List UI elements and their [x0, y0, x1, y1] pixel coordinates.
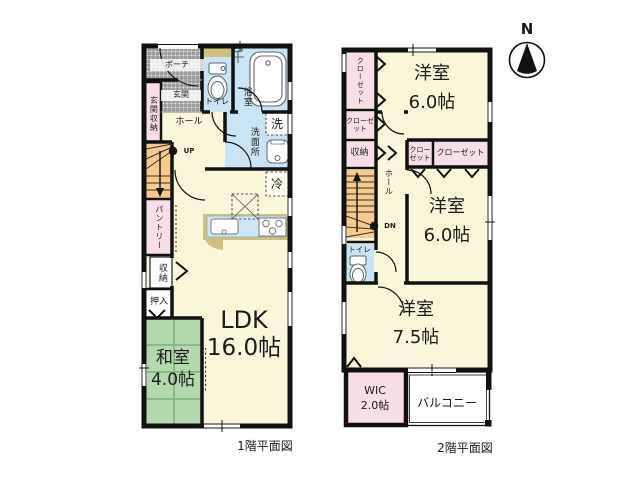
room-wic: [344, 370, 406, 426]
room-label-bedroom-mid: 洋室: [408, 196, 486, 218]
room-label-bedroom-mid-size: 6.0帖: [408, 225, 486, 247]
room-label-entrance: 玄関: [161, 90, 201, 101]
dn-dot: [370, 222, 378, 230]
room-label-porch: ポーチ: [150, 59, 204, 71]
label-closet-left-small: クローゼット: [345, 113, 375, 138]
room-label-bedroom-bottom-size: 7.5帖: [377, 327, 455, 349]
up-dot: [169, 147, 177, 155]
room-label-hall-2f: ホール: [381, 164, 395, 200]
room-label-bathroom: 浴室: [239, 78, 253, 116]
sink-icon-washroom: [267, 140, 288, 163]
label-closet-wide: クローゼット: [433, 147, 488, 160]
floorplan-page: N ポーチ 玄関 玄関収納 トイレ 浴室 洗面所 洗 ホール UP 冷 パントリ…: [0, 0, 636, 480]
north-arrow-icon: [510, 43, 545, 78]
toilet-icon-2f: [350, 256, 366, 284]
caption-floor2: 2階平面図: [432, 441, 498, 456]
room-label-toilet-1f: トイレ: [200, 97, 234, 107]
room-label-pantry: パントリー: [150, 202, 167, 253]
label-closet-left-tall: クローゼット: [351, 55, 368, 107]
label-fridge: 冷: [267, 174, 287, 194]
room-label-bedroom-top: 洋室: [393, 63, 471, 85]
room-label-bedroom-bottom: 洋室: [377, 299, 455, 321]
toilet-icon-1f: [208, 63, 227, 100]
room-label-ldk-size: 16.0帖: [186, 335, 302, 361]
room-label-hall-1f: ホール: [167, 117, 211, 128]
room-label-entrance-storage: 玄関収納: [145, 86, 161, 142]
north-label: N: [516, 21, 538, 38]
room-label-washitsu-size: 4.0帖: [142, 371, 204, 390]
room-label-wic: WIC: [347, 384, 403, 397]
room-label-balcony: バルコニー: [406, 396, 488, 410]
room-label-storage-1f: 収納: [153, 259, 169, 287]
kitchen-sink-icon: [211, 219, 238, 234]
room-label-oshiire: 押入: [146, 297, 172, 308]
label-washer: 洗: [267, 114, 287, 134]
room-label-toilet-2f: トイレ: [343, 245, 376, 255]
stove-icon: [259, 218, 286, 236]
label-dn: DN: [381, 222, 399, 231]
room-label-wic-size: 2.0帖: [347, 399, 403, 412]
label-closet-mid-small: クローゼット: [407, 143, 433, 166]
label-up: UP: [180, 147, 198, 156]
label-storage-2f: 収納: [344, 148, 375, 160]
room-label-bedroom-top-size: 6.0帖: [393, 92, 471, 114]
room-label-ldk: LDK: [196, 307, 292, 334]
caption-floor1: 1階平面図: [232, 439, 298, 454]
room-label-washroom: 洗面所: [246, 116, 260, 168]
bathtub-icon: [250, 52, 286, 106]
toilet-shelf: [202, 48, 233, 57]
floorplan-drawing: [0, 0, 636, 480]
room-label-washitsu: 和室: [146, 349, 200, 368]
